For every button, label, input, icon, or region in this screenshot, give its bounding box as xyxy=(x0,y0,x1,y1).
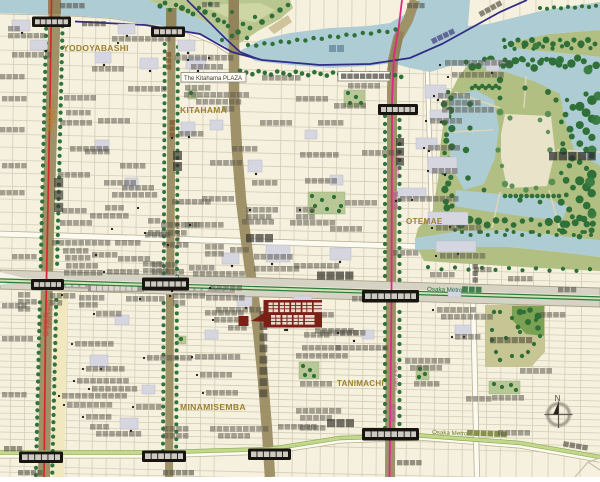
svg-text:MINAMISEMBA: MINAMISEMBA xyxy=(180,402,246,412)
svg-text:OTEMAE: OTEMAE xyxy=(406,217,443,226)
svg-text:YODOYABASHI: YODOYABASHI xyxy=(63,43,129,53)
svg-text:The Kitahama PLAZA: The Kitahama PLAZA xyxy=(184,76,242,82)
svg-text:TANIMACHI: TANIMACHI xyxy=(337,379,384,388)
svg-text:Osaka Metro: Osaka Metro xyxy=(392,362,399,391)
svg-text:KITAHAMA: KITAHAMA xyxy=(180,105,227,115)
svg-text:Osaka Metro: Osaka Metro xyxy=(174,215,181,244)
svg-text:Osaka Metro: Osaka Metro xyxy=(427,286,463,294)
